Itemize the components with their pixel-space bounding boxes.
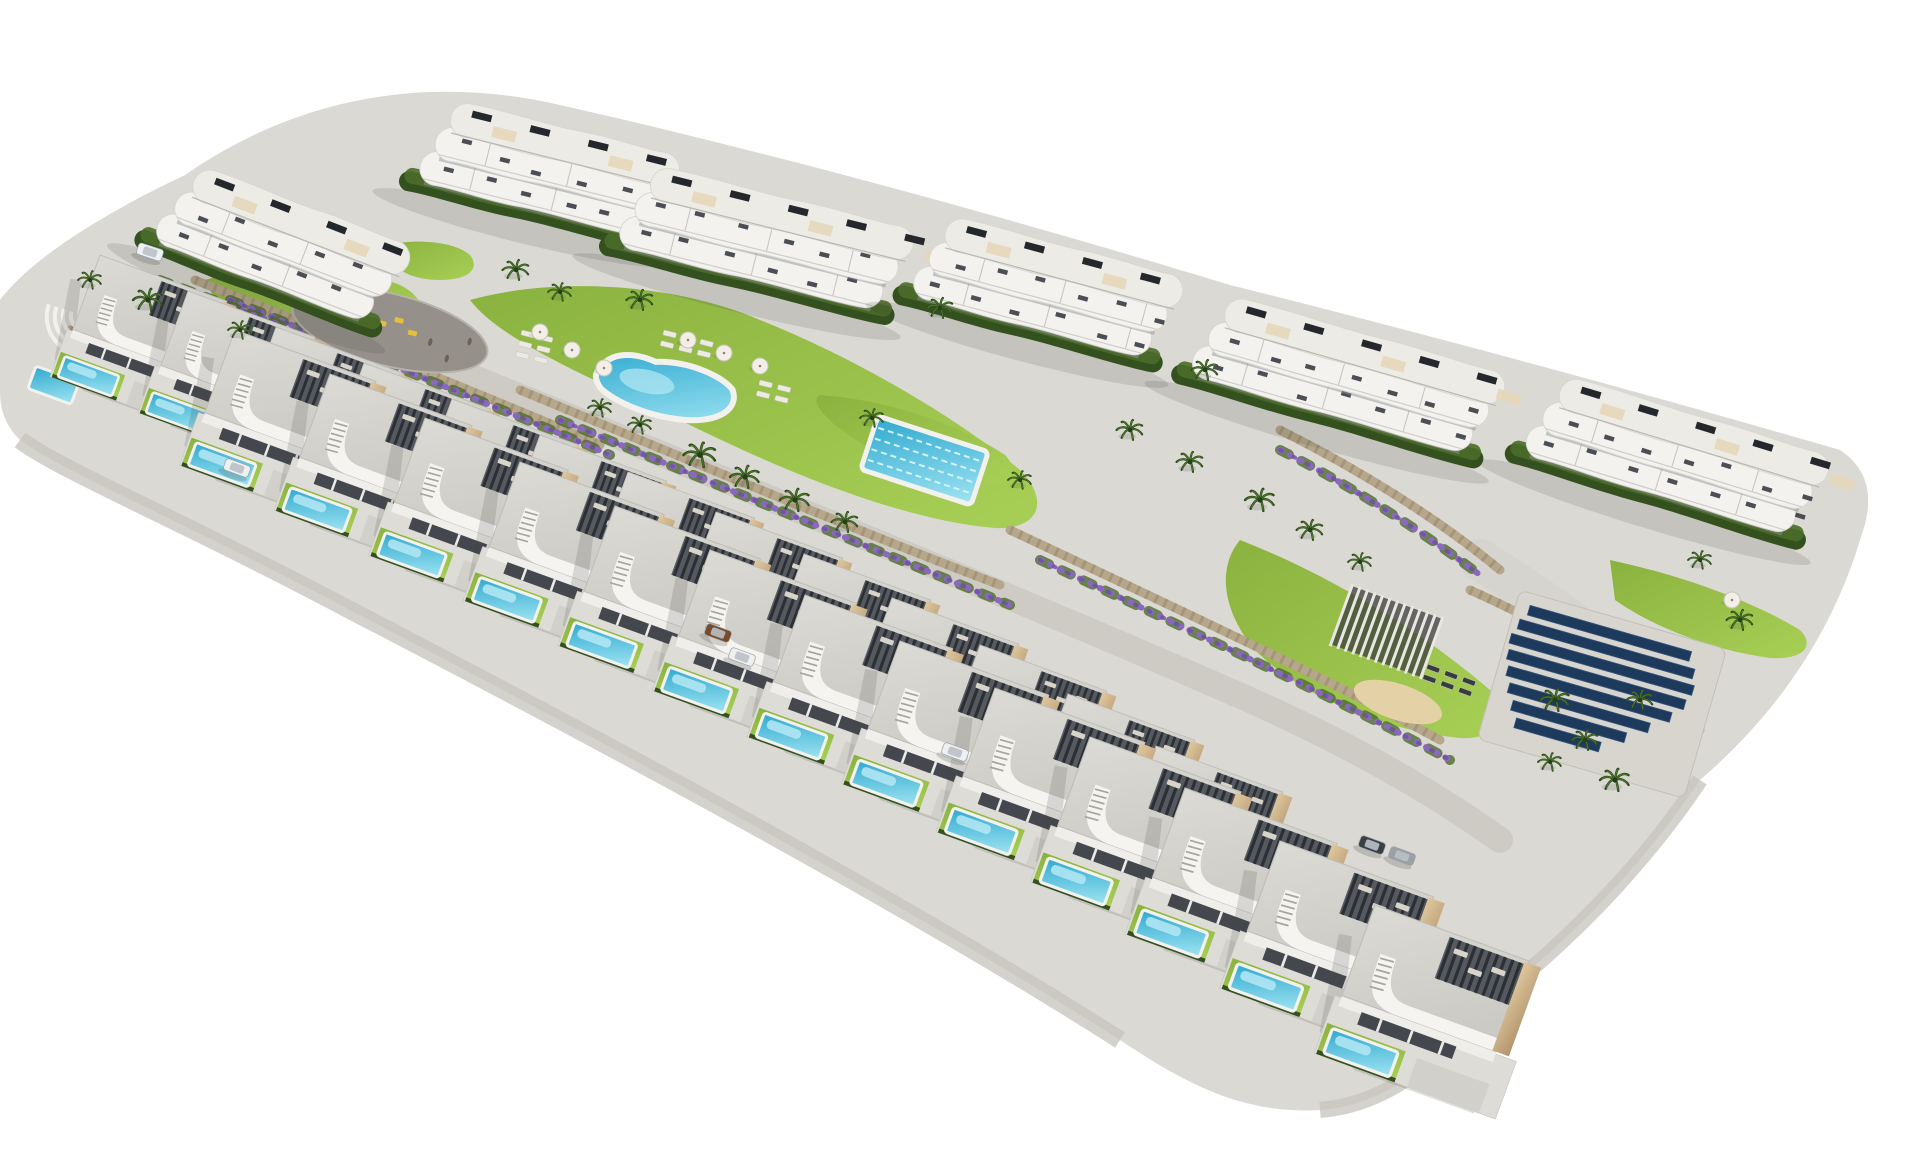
palm-crown: [843, 520, 848, 525]
palm-crown: [938, 306, 943, 311]
palm-crown: [558, 290, 562, 294]
palm-crown: [1612, 777, 1617, 782]
parasol-pole: [723, 352, 726, 355]
palm-crown: [742, 474, 747, 479]
palm-crown: [1308, 528, 1313, 533]
scene-svg: [0, 0, 1920, 1152]
palm-crown: [1358, 560, 1362, 564]
palm-crown: [638, 298, 643, 303]
palm-crown: [1548, 760, 1552, 764]
palm-crown: [1552, 697, 1557, 702]
palm-crown: [1738, 618, 1743, 623]
aerial-development-render: [0, 0, 1920, 1152]
palm-crown: [792, 497, 797, 502]
palm-crown: [697, 452, 703, 458]
palm-crown: [1203, 368, 1208, 373]
palm-crown: [1128, 428, 1133, 433]
parasol-pole: [571, 349, 574, 352]
palm-crown: [238, 328, 242, 332]
parasol-pole: [539, 331, 542, 334]
palm-crown: [1583, 738, 1588, 743]
palm-crown: [514, 268, 519, 273]
palm-crown: [1698, 558, 1702, 562]
parasol-pole: [1731, 599, 1734, 602]
palm-crown: [638, 423, 642, 427]
palm-crown: [1638, 698, 1643, 703]
palm-crown: [1188, 460, 1193, 465]
palm-crown: [870, 416, 874, 420]
parasol-pole: [687, 339, 690, 342]
parasol-pole: [603, 367, 606, 370]
palm-crown: [145, 297, 150, 302]
palm-crown: [1257, 497, 1262, 502]
palm-crown: [598, 406, 602, 410]
palm-crown: [88, 278, 92, 282]
palm-crown: [1018, 478, 1022, 482]
parasol-pole: [759, 365, 762, 368]
